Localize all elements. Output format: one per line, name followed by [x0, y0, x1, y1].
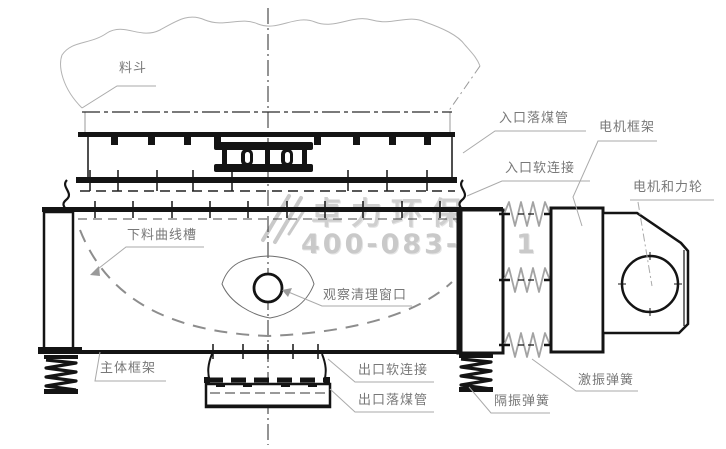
label-motor-force-wheel: 电机和力轮: [633, 181, 703, 194]
label-outlet-coal-pipe: 出口落煤管: [358, 394, 428, 407]
isolation-spring-left: [44, 355, 78, 394]
body-end-plate: [458, 210, 503, 353]
label-inlet-coal-pipe: 入口落煤管: [499, 112, 569, 125]
technical-drawing-vibrating-feeder: 卓力环保 400-083-45 1: [0, 0, 726, 449]
excitation-springs: [499, 202, 555, 357]
label-discharge-curve-chute: 下料曲线槽: [127, 229, 197, 242]
label-inlet-soft-connection: 入口软连接: [505, 162, 575, 175]
label-outlet-soft-connection: 出口软连接: [358, 364, 428, 377]
main-body-bottom: [38, 344, 503, 359]
isolation-spring-right: [459, 354, 493, 392]
main-body-top: [42, 201, 503, 219]
label-motor-frame: 电机框架: [599, 121, 655, 134]
label-isolation-spring: 隔振弹簧: [494, 395, 550, 408]
main-frame-left-column: [38, 212, 82, 353]
label-inspection-window: 观察清理窗口: [323, 289, 407, 302]
outlet-assembly: [204, 354, 330, 407]
label-excitation-spring: 激振弹簧: [578, 374, 634, 387]
label-main-body-frame: 主体框架: [100, 362, 156, 375]
label-hopper: 料斗: [119, 62, 147, 75]
center-bolted-assembly: [214, 142, 313, 172]
motor-frame-plate: [551, 208, 603, 352]
